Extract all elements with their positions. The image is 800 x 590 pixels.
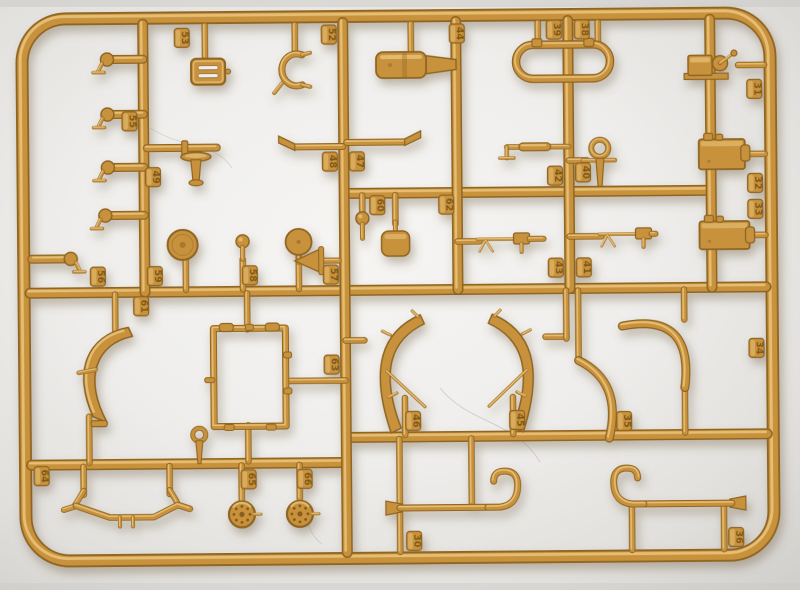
part-number-tag: 48 [322, 152, 338, 171]
svg-text:58: 58 [247, 269, 258, 283]
svg-text:53: 53 [179, 31, 190, 44]
svg-text:45: 45 [514, 413, 525, 426]
pulley-wheel-part [167, 230, 197, 260]
svg-text:57: 57 [328, 268, 339, 281]
part-number-tag: 45 [510, 410, 526, 429]
svg-text:36: 36 [733, 530, 744, 544]
svg-text:47: 47 [354, 155, 365, 168]
part-number-tag: 58 [242, 266, 258, 285]
svg-text:38: 38 [579, 23, 590, 37]
radiator-grille-part [191, 58, 231, 84]
svg-text:40: 40 [580, 166, 591, 180]
svg-text:33: 33 [752, 202, 763, 215]
svg-text:56: 56 [95, 270, 106, 284]
part-number-tag: 60 [370, 196, 386, 215]
svg-text:62: 62 [443, 198, 454, 211]
part-number-tag: 62 [439, 195, 455, 214]
part-number-tag: 30 [407, 531, 423, 550]
part-number-tag: 39 [546, 20, 562, 39]
part-number-tag: 46 [406, 411, 422, 430]
svg-text:60: 60 [374, 199, 385, 213]
part-number-tag: 56 [90, 267, 106, 286]
svg-text:49: 49 [150, 170, 161, 183]
svg-text:41: 41 [581, 261, 592, 274]
part-number-tag: 34 [749, 338, 765, 357]
part-number-tag: 32 [747, 173, 763, 192]
photo-canvas: 5352443938313233345549484742404341565958… [0, 0, 800, 590]
svg-text:42: 42 [552, 169, 563, 182]
part-number-tag: 44 [449, 24, 465, 43]
part-number-tag: 35 [617, 411, 633, 430]
part-number-tag: 57 [323, 265, 339, 284]
part-number-tag: 66 [297, 469, 313, 488]
part-number-tag: 49 [145, 168, 161, 187]
part-number-tag: 55 [122, 112, 138, 131]
svg-text:61: 61 [138, 300, 149, 313]
svg-text:63: 63 [329, 358, 340, 371]
svg-text:44: 44 [454, 27, 465, 41]
svg-text:66: 66 [302, 472, 313, 486]
svg-text:46: 46 [410, 414, 421, 428]
part-number-tag: 53 [174, 28, 190, 47]
sprue-photo: 5352443938313233345549484742404341565958… [0, 0, 800, 590]
svg-text:34: 34 [753, 341, 764, 355]
svg-text:59: 59 [152, 269, 163, 282]
svg-text:65: 65 [246, 473, 257, 486]
svg-text:31: 31 [751, 82, 762, 95]
part-number-tag: 33 [748, 199, 764, 218]
part-number-tag: 40 [575, 163, 591, 182]
part-number-tag: 64 [34, 467, 50, 486]
part-number-tag: 43 [548, 258, 564, 277]
part-number-tag: 47 [349, 152, 365, 171]
part-number-tag: 65 [241, 470, 257, 489]
part-number-tag: 41 [576, 258, 592, 277]
part-number-tag: 31 [747, 79, 763, 98]
svg-text:35: 35 [621, 414, 632, 427]
part-number-tag: 36 [729, 528, 745, 547]
svg-text:52: 52 [326, 28, 337, 41]
part-number-tag: 61 [134, 297, 150, 316]
svg-text:30: 30 [411, 534, 422, 548]
part-number-tag: 63 [324, 355, 340, 374]
part-number-tag: 38 [574, 20, 590, 39]
svg-text:48: 48 [327, 155, 338, 169]
part-number-tag: 59 [147, 267, 163, 286]
part-number-tag: 52 [321, 25, 337, 44]
svg-text:64: 64 [39, 469, 50, 483]
svg-text:43: 43 [553, 261, 564, 274]
svg-text:39: 39 [551, 23, 562, 36]
svg-text:32: 32 [752, 176, 763, 189]
part-number-tag: 42 [547, 166, 563, 185]
svg-text:55: 55 [126, 115, 137, 128]
engine-block-part [699, 133, 750, 169]
